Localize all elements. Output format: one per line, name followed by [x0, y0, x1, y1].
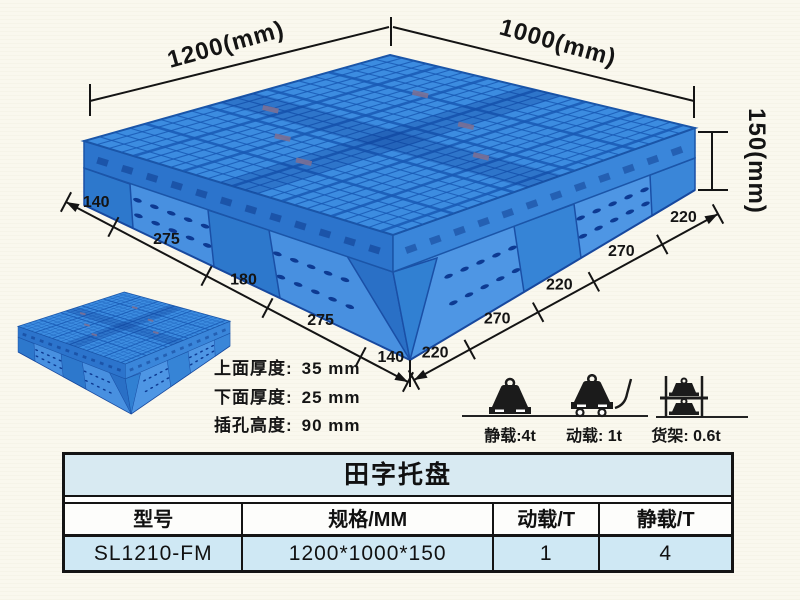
table-header-dynamic-load: 动载/T — [494, 504, 601, 537]
spec-table: 田字托盘 型号 规格/MM 动载/T 静载/T SL1210-FM 1200*1… — [62, 452, 734, 573]
table-header-model: 型号 — [65, 504, 243, 537]
note-value: 35 mm — [302, 359, 361, 378]
table-header-static-load: 静载/T — [600, 504, 731, 537]
cell-dynamic-load: 1 — [494, 537, 601, 570]
cell-static-load: 4 — [600, 537, 731, 570]
cell-spec: 1200*1000*150 — [243, 537, 493, 570]
pallet-small-view — [18, 292, 230, 414]
dim-left-0: 140 — [83, 194, 110, 211]
dim-width-right-label: 1000(mm) — [497, 14, 620, 72]
static-load-label: 静载:4t — [484, 422, 536, 446]
dynamic-load-label: 动载: 1t — [566, 422, 622, 446]
note-label: 下面厚度: — [214, 388, 293, 407]
product-sheet: 1200(mm) 1000(mm) 150(mm) 140 275 180 27… — [0, 0, 800, 600]
dim-left-2: 180 — [230, 272, 257, 289]
load-ratings: 静载:4t 动载: 1t 货架: 0.6t — [452, 374, 752, 446]
rack-load-icon — [656, 376, 748, 417]
dim-right-4: 220 — [670, 209, 697, 226]
dim-left-4: 140 — [377, 349, 404, 366]
note-value: 90 mm — [302, 416, 361, 435]
dim-left-3: 275 — [307, 312, 334, 329]
note-value: 25 mm — [302, 388, 361, 407]
table-divider — [65, 497, 731, 504]
bottom-thickness-note: 下面厚度:25 mm — [214, 384, 361, 413]
note-label: 插孔高度: — [214, 416, 293, 435]
cell-model: SL1210-FM — [65, 537, 243, 570]
table-header-row: 型号 规格/MM 动载/T 静载/T — [65, 504, 731, 537]
rack-load-label: 货架: 0.6t — [651, 422, 720, 446]
dim-right-2: 220 — [546, 277, 573, 294]
dynamic-load-icon — [571, 375, 631, 416]
table-row: SL1210-FM 1200*1000*150 1 4 — [65, 537, 731, 570]
top-thickness-note: 上面厚度:35 mm — [214, 355, 361, 384]
static-load-icon — [462, 379, 648, 416]
dim-right-1: 270 — [484, 311, 511, 328]
dim-right-0: 220 — [422, 344, 449, 361]
table-header-spec: 规格/MM — [243, 504, 493, 537]
table-title: 田字托盘 — [65, 455, 731, 497]
fork-height-note: 插孔高度:90 mm — [214, 412, 361, 441]
thickness-notes: 上面厚度:35 mm 下面厚度:25 mm 插孔高度:90 mm — [214, 355, 361, 441]
dim-width-left-label: 1200(mm) — [165, 16, 288, 74]
dim-right-3: 270 — [608, 243, 635, 260]
dim-left-1: 275 — [153, 231, 180, 248]
note-label: 上面厚度: — [214, 359, 293, 378]
dim-height-label: 150(mm) — [743, 108, 770, 214]
